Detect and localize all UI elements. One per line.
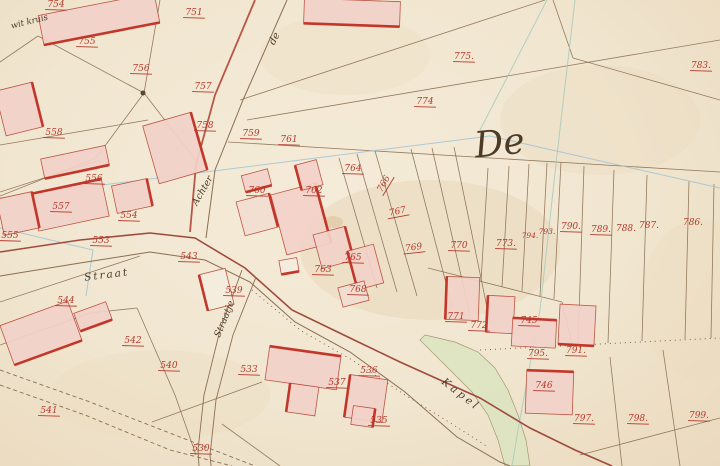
- parcel-number-underline: [533, 391, 555, 392]
- parcel-number-text: 530: [192, 444, 209, 454]
- cadastral-map-canvas: 7547557517567577585587597617607627647667…: [0, 0, 720, 466]
- parcel-number-text: 758: [196, 121, 213, 131]
- parcel-number-text: 541: [40, 406, 57, 416]
- parcel-number-text: 760: [248, 186, 265, 196]
- wit-kruis-marker: [141, 91, 146, 96]
- parcel-number-text: 762: [305, 186, 322, 196]
- parcel-number: 533: [238, 365, 260, 375]
- parcel-number-text: 533: [240, 365, 257, 375]
- parcel-number: 799.: [688, 411, 710, 421]
- parcel-number-text: 768: [349, 285, 366, 295]
- parcel-number-text: 795.: [528, 349, 548, 359]
- parcel-number-text: 537: [328, 378, 345, 388]
- building-footprint: [286, 383, 319, 416]
- parcel-number: 556: [83, 174, 105, 184]
- parcel-number-underline: [90, 246, 112, 247]
- parcel-number: 760: [246, 186, 268, 196]
- parcel-number-text: 542: [124, 336, 141, 346]
- building-shape: [236, 193, 278, 236]
- building-footprint: [525, 370, 573, 415]
- parcel-number-text: 554: [120, 211, 137, 221]
- parcel-number-underline: [565, 356, 587, 357]
- parcel-number-text: 759: [242, 129, 259, 139]
- parcel-number-text: 540: [160, 361, 177, 371]
- cadastral-map: 7547557517567577585587597617607627647667…: [0, 0, 720, 466]
- parcel-number-text: 799.: [689, 411, 709, 421]
- parcel-number-text: 763: [314, 265, 331, 275]
- parcel-number: 768: [347, 285, 369, 295]
- parcel-number-text: 798.: [628, 414, 648, 424]
- parcel-number-underline: [312, 275, 334, 276]
- parcel-number-underline: [342, 174, 364, 175]
- place-name-de-large: De: [471, 121, 526, 167]
- parcel-number-underline: [303, 196, 325, 197]
- building-footprint: [558, 304, 596, 346]
- parcel-number-text: 788.: [616, 224, 636, 234]
- parcel-number: 530: [190, 444, 212, 454]
- parcel-number: 544: [55, 296, 77, 306]
- building-shape: [304, 0, 401, 27]
- parcel-number-text: 791.: [566, 346, 586, 356]
- parcel-number-underline: [246, 196, 268, 197]
- parcel-number: 772: [468, 321, 490, 331]
- parcel-number-underline: [368, 426, 390, 427]
- parcel-number: 535: [368, 416, 390, 426]
- parcel-number: 541: [38, 406, 60, 416]
- paper-stain: [260, 15, 430, 95]
- parcel-number-underline: [76, 47, 98, 48]
- parcel-number: 555: [0, 231, 21, 241]
- parcel-number-underline: [468, 331, 490, 332]
- parcel-number: 536: [358, 366, 380, 376]
- parcel-number-text: 558: [45, 128, 62, 138]
- parcel-number: 775.: [453, 52, 475, 62]
- parcel-number-underline: [358, 376, 380, 377]
- parcel-number-text: 553: [92, 236, 109, 246]
- parcel-number-underline: [590, 235, 612, 236]
- parcel-number-underline: [122, 346, 144, 347]
- parcel-number-text: 745: [520, 316, 537, 326]
- parcel-number-underline: [43, 138, 65, 139]
- parcel-number: 795.: [527, 349, 549, 359]
- building-shape: [111, 179, 152, 214]
- parcel-number: 770: [448, 241, 470, 251]
- parcel-number-underline: [55, 306, 77, 307]
- paper-stain: [500, 65, 700, 175]
- parcel-number-text: 555: [1, 231, 18, 241]
- building-footprint: [111, 179, 152, 214]
- building-shape: [486, 295, 515, 333]
- parcel-number-text: 786.: [683, 218, 703, 228]
- building-shape: [0, 82, 43, 136]
- parcel-number: 758: [194, 121, 216, 131]
- parcel-number: 751: [183, 8, 205, 18]
- parcel-number-text: 773.: [496, 239, 516, 249]
- parcel-number-text: 535: [370, 416, 387, 426]
- parcel-number-text: 789.: [591, 225, 611, 235]
- parcel-number: 763: [312, 265, 334, 275]
- parcel-number-underline: [690, 71, 712, 72]
- building-footprint: [0, 82, 43, 136]
- parcel-number: 557: [50, 202, 72, 212]
- parcel-number-text: 797.: [574, 414, 594, 424]
- parcel-number: 794.: [522, 231, 539, 240]
- parcel-number-underline: [627, 424, 649, 425]
- parcel-number: 789.: [590, 225, 612, 235]
- parcel-boundary-line: [553, 0, 573, 58]
- parcel-number-underline: [445, 322, 467, 323]
- parcel-number-text: 770: [450, 241, 467, 251]
- parcel-number-text: 751: [185, 8, 202, 18]
- parcel-number-text: 543: [180, 252, 197, 262]
- building-shape: [558, 304, 596, 346]
- parcel-number-text: 754: [47, 0, 64, 10]
- parcel-number-underline: [238, 375, 260, 376]
- parcel-number-underline: [573, 424, 595, 425]
- parcel-number-text: 774: [416, 97, 433, 107]
- parcel-number-text: 790.: [561, 222, 581, 232]
- parcel-number-text: 761: [280, 135, 297, 145]
- parcel-number-underline: [326, 388, 348, 389]
- parcel-number: 540: [158, 361, 180, 371]
- parcel-number: 745: [518, 316, 540, 326]
- building-shape: [74, 302, 112, 331]
- parcel-number: 762: [303, 186, 325, 196]
- building-shape: [31, 179, 109, 231]
- parcel-number: 773.: [495, 239, 517, 249]
- parcel-number-text: 556: [85, 174, 102, 184]
- parcel-number-underline: [50, 212, 72, 213]
- parcel-number-underline: [45, 10, 67, 11]
- parcel-number-underline: [223, 296, 245, 297]
- parcel-number: 553: [90, 236, 112, 246]
- parcel-number-underline: [178, 262, 200, 263]
- parcel-number-underline: [527, 359, 549, 360]
- parcel-number-text: 794.: [522, 231, 539, 240]
- parcel-number-text: 775.: [454, 52, 474, 62]
- parcel-boundary-line: [0, 36, 38, 62]
- parcel-number-text: 756: [132, 64, 149, 74]
- parcel-number-underline: [158, 371, 180, 372]
- parcel-number-underline: [688, 421, 710, 422]
- parcel-number: 790.: [560, 222, 582, 232]
- parcel-number: 774: [414, 97, 436, 107]
- parcel-number-underline: [342, 263, 364, 264]
- parcel-number-text: 764: [344, 164, 361, 174]
- parcel-number-underline: [240, 139, 262, 140]
- parcel-number: 542: [122, 336, 144, 346]
- building-footprint: [486, 295, 515, 333]
- parcel-number: 786.: [683, 218, 703, 228]
- building-shape: [286, 383, 319, 416]
- parcel-number: 771: [445, 312, 467, 322]
- parcel-number: 539: [223, 286, 245, 296]
- parcel-number-underline: [192, 92, 214, 93]
- parcel-number: 783.: [690, 61, 712, 71]
- parcel-number: 797.: [573, 414, 595, 424]
- parcel-number-underline: [194, 131, 216, 132]
- parcel-boundary-line: [222, 424, 280, 466]
- parcel-number-underline: [347, 295, 369, 296]
- parcel-number-text: 536: [360, 366, 377, 376]
- building-red-edge: [527, 370, 574, 372]
- parcel-number: 754: [45, 0, 67, 10]
- parcel-number-underline: [495, 249, 517, 250]
- parcel-number: 793.: [539, 227, 556, 236]
- parcel-number-underline: [0, 241, 21, 242]
- parcel-number: 791.: [565, 346, 587, 356]
- parcel-number-text: 771: [447, 312, 464, 322]
- parcel-number-text: 539: [225, 286, 242, 296]
- parcel-number-underline: [83, 184, 105, 185]
- parcel-number: 757: [192, 82, 214, 92]
- parcel-number: 788.: [616, 224, 636, 234]
- parcel-number-text: 544: [57, 296, 74, 306]
- parcel-number: 761: [278, 135, 300, 145]
- building-shape: [279, 258, 299, 275]
- parcel-number-underline: [190, 454, 212, 455]
- parcel-number-text: 772: [470, 321, 487, 331]
- parcel-number-text: 757: [194, 82, 211, 92]
- building-shape: [525, 370, 573, 415]
- parcel-number-text: 787.: [639, 221, 659, 231]
- parcel-number-text: 746: [535, 381, 552, 391]
- parcel-number: 543: [178, 252, 200, 262]
- parcel-number-underline: [38, 416, 60, 417]
- parcel-number: 765: [342, 253, 364, 263]
- parcel-boundary-line: [580, 418, 720, 455]
- parcel-number: 755: [76, 37, 98, 47]
- parcel-number-underline: [453, 62, 475, 63]
- parcel-number-underline: [118, 221, 140, 222]
- parcel-number-text: 755: [78, 37, 95, 47]
- parcel-number: 554: [118, 211, 140, 221]
- parcel-number-text: 793.: [539, 227, 556, 236]
- parcel-number-text: 783.: [691, 61, 711, 71]
- paper-stain: [640, 220, 720, 380]
- parcel-number-text: 765: [344, 253, 361, 263]
- building-shape: [0, 301, 82, 365]
- parcel-number: 537: [326, 378, 348, 388]
- parcel-number: 787.: [639, 221, 659, 231]
- parcel-number-text: 557: [52, 202, 69, 212]
- parcel-number: 756: [130, 64, 152, 74]
- parcel-number: 558: [43, 128, 65, 138]
- parcel-number-underline: [183, 18, 205, 19]
- parcel-number: 746: [533, 381, 555, 391]
- parcel-boundary-line: [610, 357, 622, 466]
- parcel-number-underline: [518, 326, 540, 327]
- parcel-number: 798.: [627, 414, 649, 424]
- building-shape: [0, 192, 39, 236]
- parcel-number-underline: [414, 107, 436, 108]
- parcel-number-underline: [448, 251, 470, 252]
- parcel-number: 764: [342, 164, 364, 174]
- parcel-number-underline: [560, 232, 582, 233]
- parcel-number-underline: [130, 74, 152, 75]
- parcel-number-underline: [278, 145, 300, 146]
- parcel-boundary-line: [608, 170, 614, 343]
- parcel-number: 759: [240, 129, 262, 139]
